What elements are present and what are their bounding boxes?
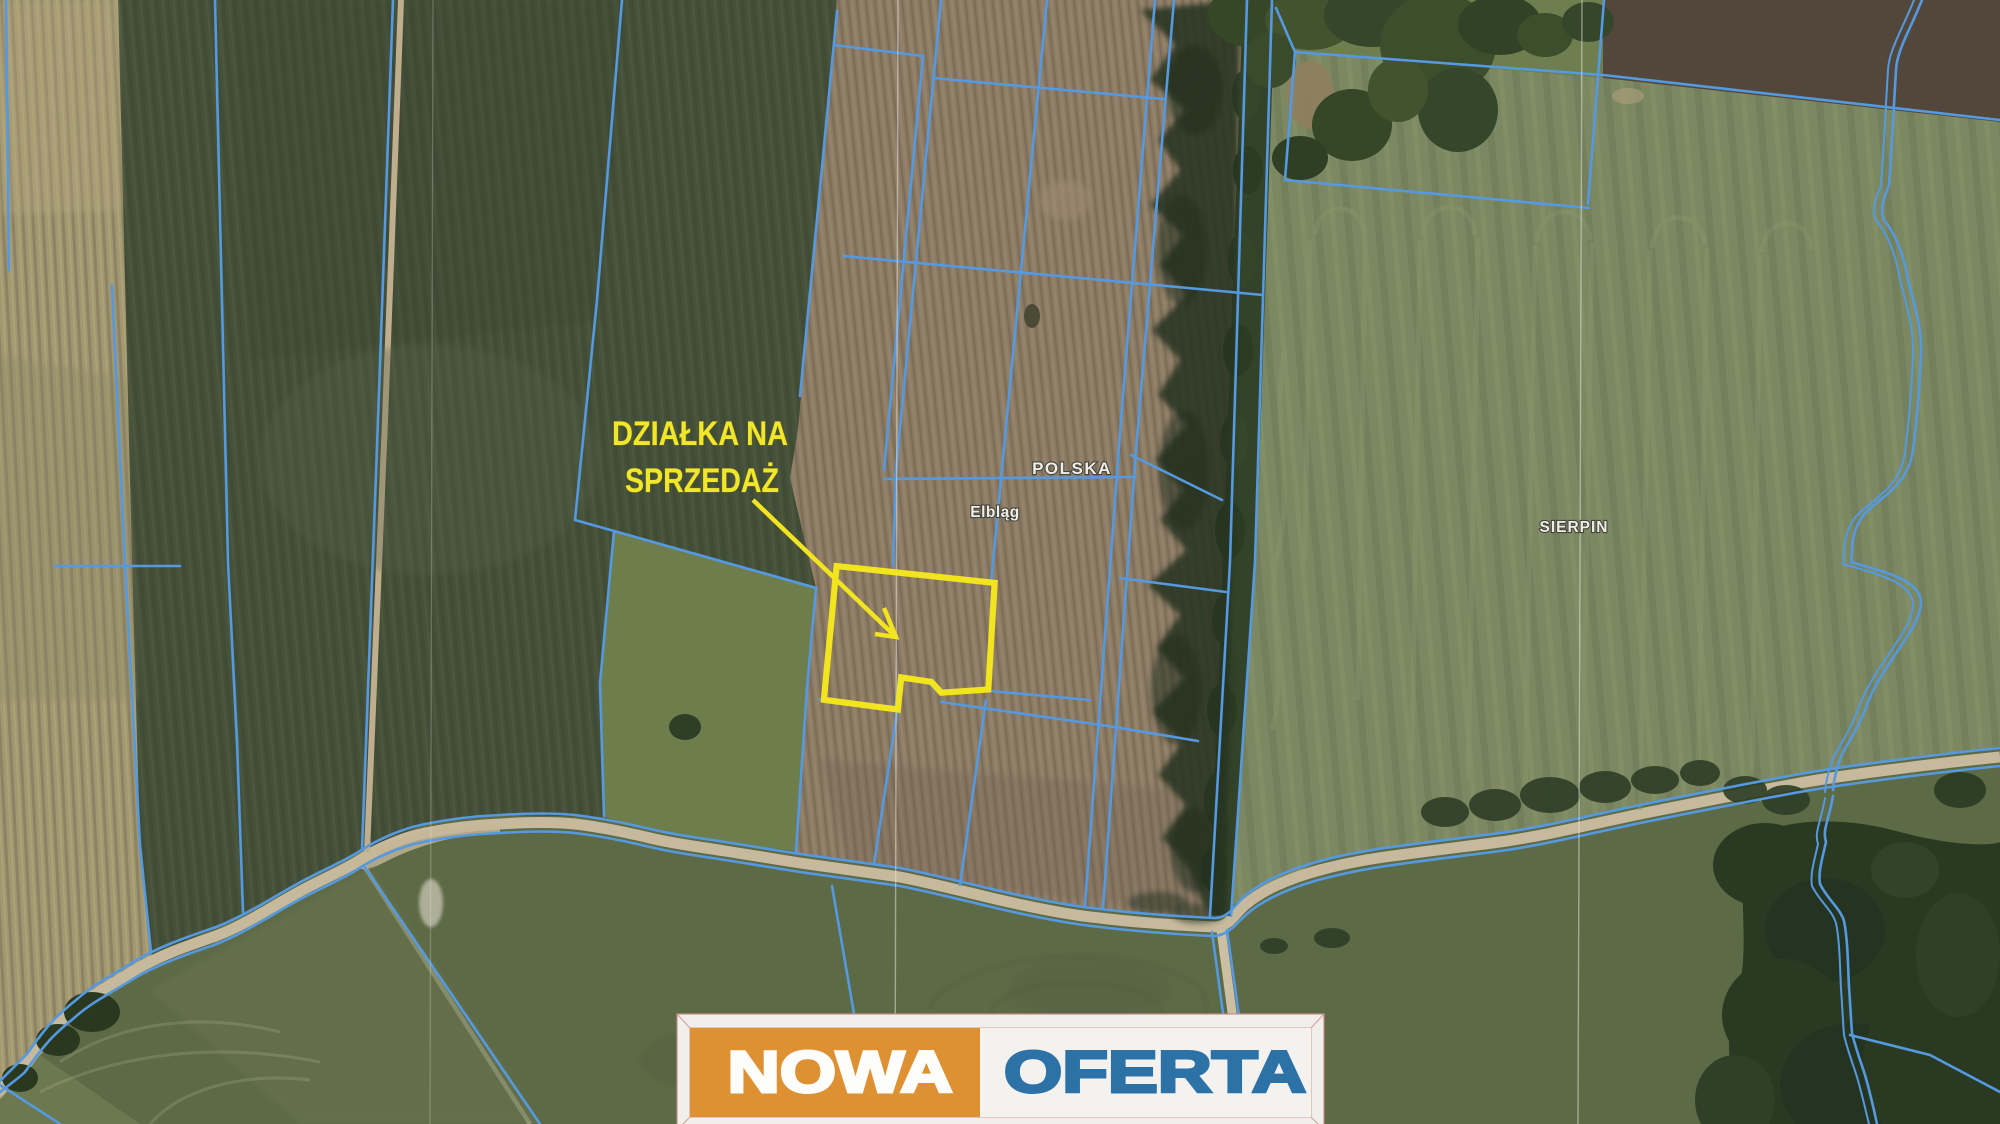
svg-text:SIERPIN: SIERPIN [1539, 519, 1608, 536]
svg-text:POLSKA: POLSKA [1032, 459, 1112, 478]
svg-text:Elbląg: Elbląg [970, 504, 1020, 521]
svg-text:OFERTA: OFERTA [1004, 1040, 1306, 1105]
svg-text:DZIAŁKA NA: DZIAŁKA NA [612, 415, 788, 453]
svg-text:SPRZEDAŻ: SPRZEDAŻ [625, 462, 779, 500]
svg-text:NOWA: NOWA [728, 1040, 953, 1105]
